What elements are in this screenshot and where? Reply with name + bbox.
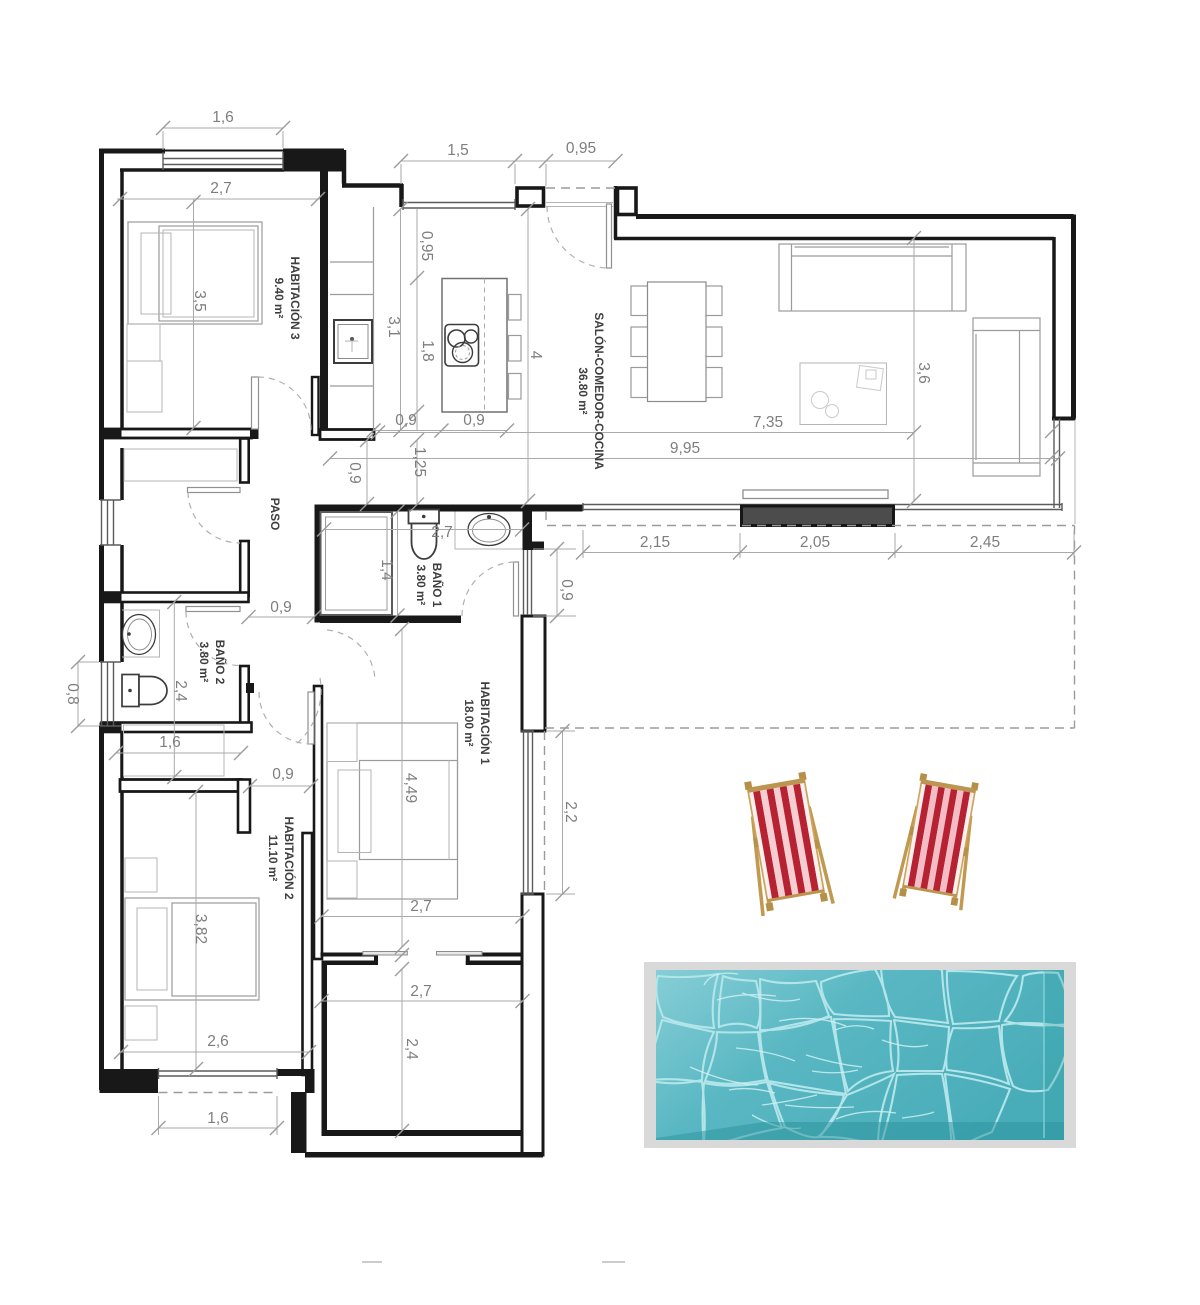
svg-text:0,9: 0,9 <box>395 412 417 429</box>
svg-text:3,6: 3,6 <box>915 362 932 384</box>
svg-text:0,9: 0,9 <box>346 462 363 484</box>
svg-text:1,4: 1,4 <box>378 559 395 581</box>
svg-text:3.80 m²: 3.80 m² <box>414 565 428 606</box>
svg-text:1,6: 1,6 <box>212 109 234 126</box>
svg-text:7,35: 7,35 <box>753 414 783 431</box>
svg-text:2,45: 2,45 <box>970 534 1000 551</box>
svg-text:9,95: 9,95 <box>670 440 700 457</box>
svg-text:0,9: 0,9 <box>558 579 575 601</box>
svg-text:18.00 m²: 18.00 m² <box>462 699 476 746</box>
svg-text:9.40 m²: 9.40 m² <box>272 278 286 319</box>
svg-text:HABITACIÓN 2: HABITACIÓN 2 <box>282 816 296 899</box>
svg-text:1,6: 1,6 <box>207 1110 229 1127</box>
svg-text:HABITACIÓN 3: HABITACIÓN 3 <box>288 256 302 339</box>
svg-text:2,7: 2,7 <box>210 180 232 197</box>
svg-text:4,49: 4,49 <box>402 773 419 803</box>
svg-text:2,2: 2,2 <box>562 801 579 823</box>
svg-text:1,8: 1,8 <box>419 340 436 362</box>
svg-text:2,4: 2,4 <box>403 1038 420 1060</box>
svg-text:2,05: 2,05 <box>800 534 830 551</box>
svg-text:1,5: 1,5 <box>447 142 469 159</box>
svg-text:11.10 m²: 11.10 m² <box>266 835 280 882</box>
svg-text:2,7: 2,7 <box>410 983 432 1000</box>
svg-text:1,6: 1,6 <box>159 734 181 751</box>
svg-text:2,6: 2,6 <box>207 1033 229 1050</box>
svg-text:0,95: 0,95 <box>418 231 435 261</box>
svg-text:0,95: 0,95 <box>566 140 596 157</box>
svg-text:HABITACIÓN 1: HABITACIÓN 1 <box>478 681 492 764</box>
svg-text:36.80 m²: 36.80 m² <box>576 367 590 414</box>
svg-text:0,9: 0,9 <box>272 766 294 783</box>
svg-text:3,5: 3,5 <box>191 290 208 312</box>
svg-text:0,9: 0,9 <box>463 412 485 429</box>
svg-text:2,4: 2,4 <box>172 680 189 702</box>
svg-text:2,7: 2,7 <box>410 898 432 915</box>
svg-text:PASO: PASO <box>268 498 282 531</box>
svg-text:2,7: 2,7 <box>431 524 453 541</box>
svg-text:3,1: 3,1 <box>385 316 402 338</box>
svg-text:2,15: 2,15 <box>640 534 670 551</box>
svg-text:1,25: 1,25 <box>411 447 428 477</box>
svg-text:0,9: 0,9 <box>270 599 292 616</box>
svg-text:4: 4 <box>527 351 544 360</box>
svg-text:0,8: 0,8 <box>64 683 81 705</box>
svg-text:BAÑO 1: BAÑO 1 <box>430 563 444 608</box>
svg-text:SALÓN-COMEDOR-COCINA: SALÓN-COMEDOR-COCINA <box>592 312 606 470</box>
svg-text:BAÑO 2: BAÑO 2 <box>213 640 227 685</box>
svg-text:3.80 m²: 3.80 m² <box>197 642 211 683</box>
svg-text:3,82: 3,82 <box>192 914 209 944</box>
